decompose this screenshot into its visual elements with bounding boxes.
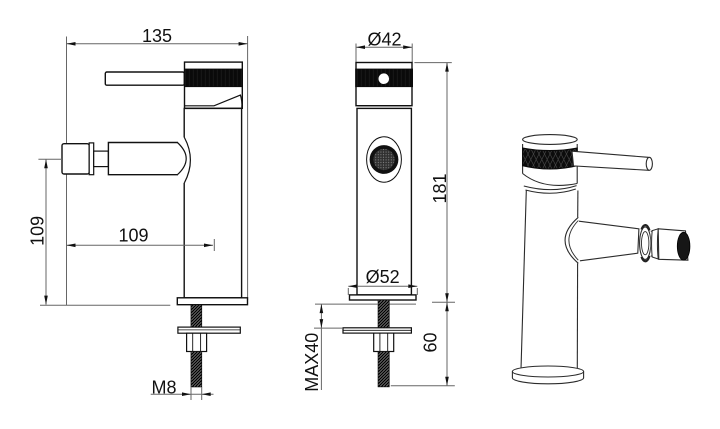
svg-text:109: 109 <box>27 216 47 246</box>
svg-text:181: 181 <box>430 173 450 203</box>
svg-text:Ø42: Ø42 <box>367 29 401 49</box>
svg-text:60: 60 <box>421 332 441 352</box>
svg-text:109: 109 <box>118 226 148 246</box>
svg-text:MAX40: MAX40 <box>302 333 322 392</box>
svg-text:135: 135 <box>142 26 172 46</box>
svg-text:Ø52: Ø52 <box>366 267 400 287</box>
